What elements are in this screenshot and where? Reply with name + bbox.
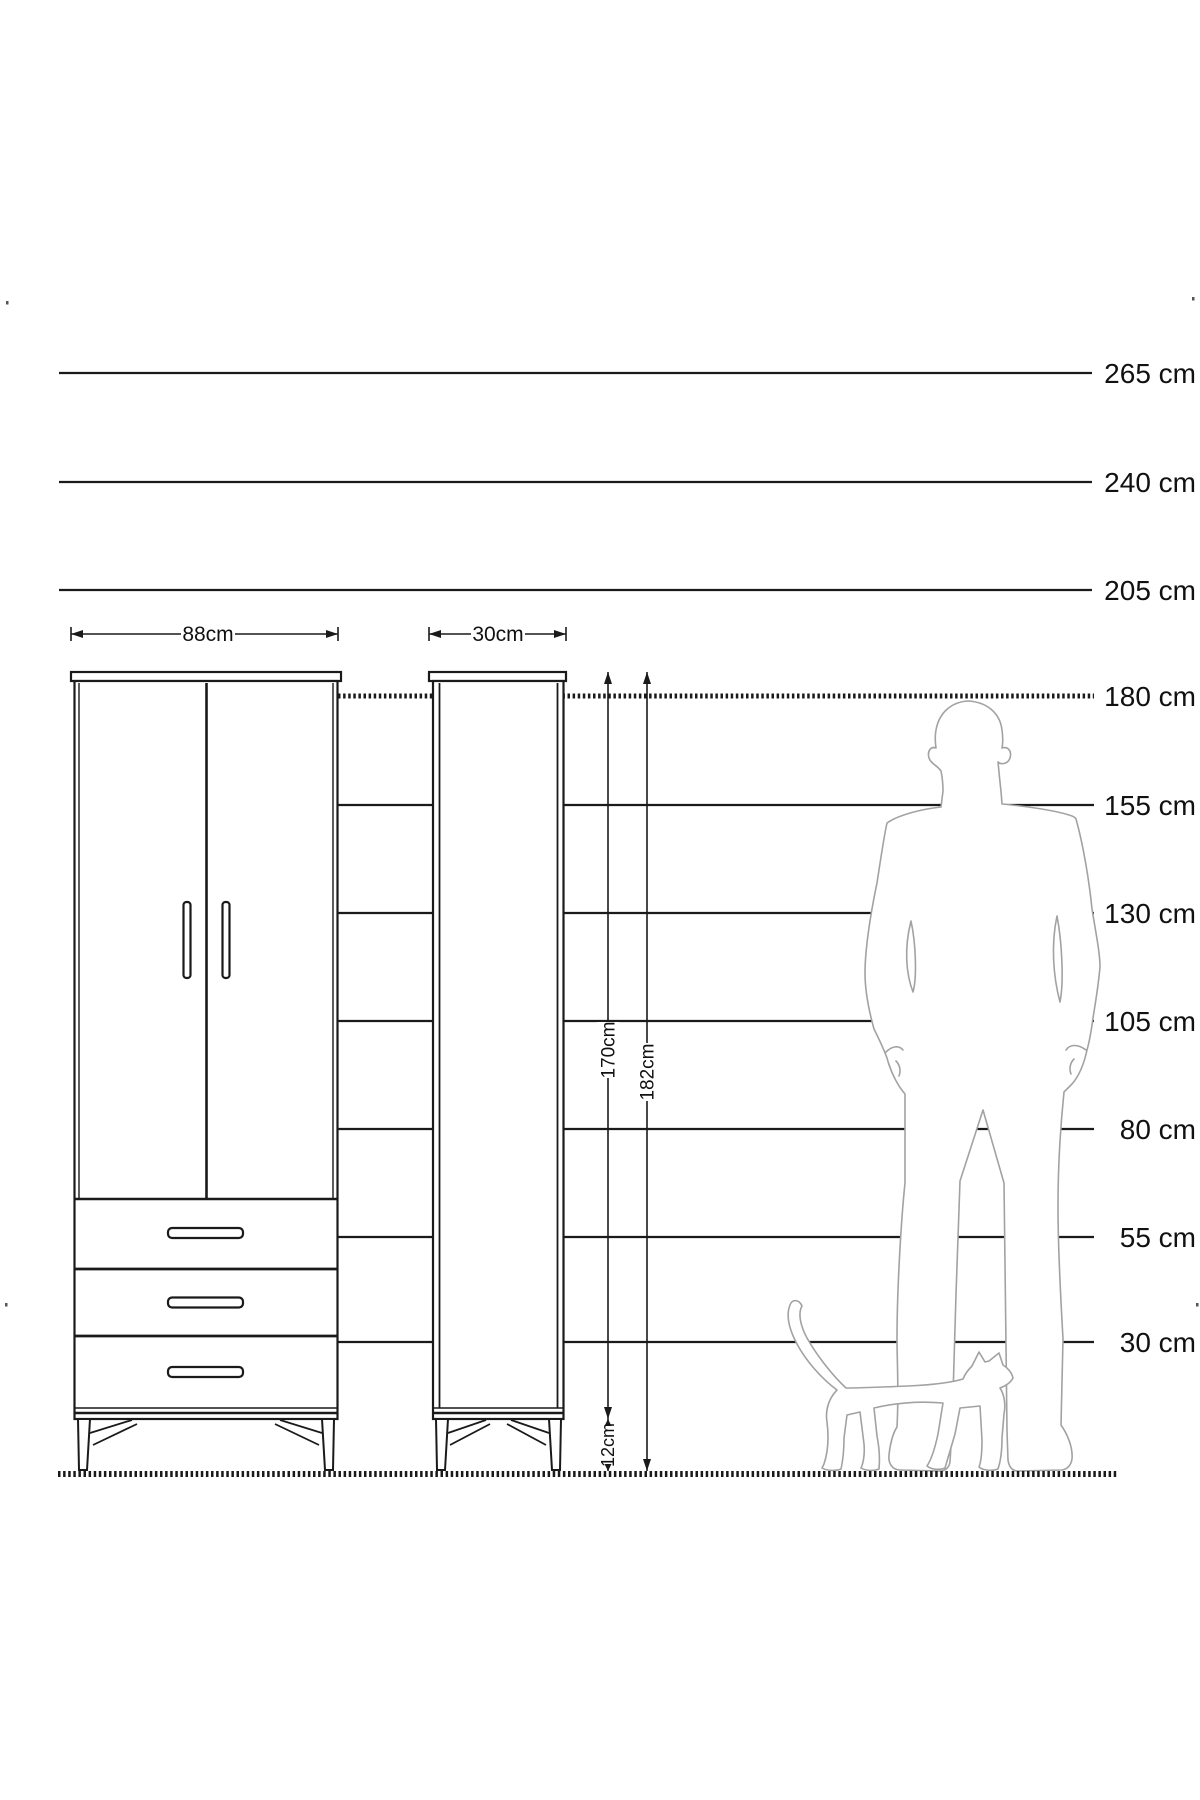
drawer-handle: [168, 1228, 243, 1238]
height-dimension-body: 170cm: [597, 672, 619, 1419]
height-label: 30 cm: [1120, 1327, 1196, 1358]
width-dimension-cabinet-label: 30cm: [472, 623, 523, 646]
door-handle: [184, 902, 191, 978]
width-dimension-wardrobe: 88cm: [71, 623, 338, 646]
height-dimension-legs-label: 12cm: [598, 1423, 618, 1467]
wardrobe-side-view: [429, 672, 566, 1470]
width-dimension-wardrobe-label: 88cm: [182, 623, 233, 646]
height-dimension-body-label: 170cm: [598, 1021, 619, 1078]
height-label: 105 cm: [1104, 1006, 1196, 1037]
height-label: 205 cm: [1104, 575, 1196, 606]
man-silhouette: [865, 701, 1100, 1471]
height-label: 155 cm: [1104, 790, 1196, 821]
height-dimension-total-label: 182cm: [637, 1043, 658, 1100]
height-dimension-legs: 12cm: [597, 1419, 619, 1471]
width-dimension-cabinet: 30cm: [429, 623, 566, 646]
height-dimension-total: 182cm: [636, 672, 658, 1471]
dimension-diagram: 88cm30cm170cm182cm12cm265 cm240 cm205 cm…: [0, 0, 1200, 1800]
height-label: 180 cm: [1104, 681, 1196, 712]
drawer-handle: [168, 1367, 243, 1377]
wardrobe-front-view: [71, 672, 341, 1470]
wardrobe-leg: [322, 1419, 334, 1470]
height-ruler-labels: 265 cm240 cm205 cm180 cm155 cm130 cm105 …: [1104, 358, 1196, 1358]
height-label: 80 cm: [1120, 1114, 1196, 1145]
height-label: 130 cm: [1104, 898, 1196, 929]
height-label: 55 cm: [1120, 1222, 1196, 1253]
man-outline: [865, 701, 1100, 1471]
height-label: 265 cm: [1104, 358, 1196, 389]
cabinet-leg: [549, 1419, 561, 1470]
door-handle: [223, 902, 230, 978]
height-label: 240 cm: [1104, 467, 1196, 498]
drawer-handle: [168, 1298, 243, 1308]
wardrobe-leg: [78, 1419, 90, 1470]
cabinet-leg: [436, 1419, 448, 1470]
